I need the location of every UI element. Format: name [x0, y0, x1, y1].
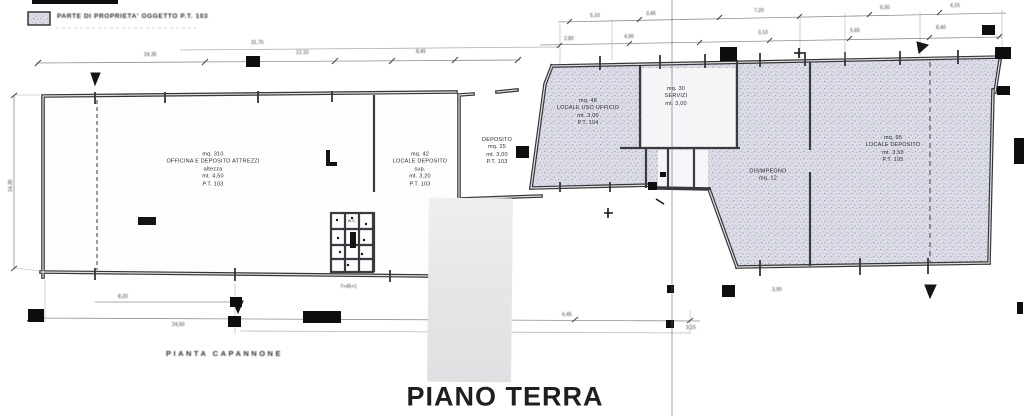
- scan-fold-line: [671, 0, 673, 416]
- dim-value: 6,30: [880, 5, 890, 11]
- dim-note-wc: 7+45+1: [340, 284, 357, 290]
- room-label-left-second: mq. 42 LOCALE DEPOSITO sup. mt. 3,20 P.T…: [393, 151, 448, 188]
- paper-patch-overlay: [427, 198, 513, 383]
- room-label-right-main: mq. 95 LOCALE DEPOSITO mt. 3,50 P.T. 105: [866, 135, 921, 165]
- room-label-corridor: DISIMPEGNO mq. 12: [749, 169, 786, 184]
- dim-value: 31,70: [251, 40, 264, 46]
- legend-swatch: [28, 12, 50, 25]
- dim-value: 3,10: [758, 30, 768, 36]
- dim-value: 8,20: [118, 294, 128, 300]
- dim-value: 8,40: [936, 25, 946, 31]
- dim-value: 7,20: [754, 8, 764, 14]
- dim-value: 12,10: [296, 50, 309, 56]
- dim-value: 5,10: [590, 13, 600, 19]
- dim-value: 14,35: [8, 179, 14, 192]
- right-top-room-floor: [642, 68, 735, 147]
- dim-value: 3,45: [646, 11, 656, 17]
- dim-value: 24,50: [172, 322, 185, 328]
- dim-value: 4,90: [624, 34, 634, 40]
- room-label-right-top: mq. 30 SERVIZI mt. 3,00: [665, 86, 688, 108]
- scanned-floorplan-page: PARTE DI PROPRIETA' OGGETTO P.T. 103 mq.…: [0, 0, 1024, 416]
- room-label-middle: DEPOSITO mq. 25 mt. 3,00 P.T. 103: [482, 137, 512, 167]
- dim-value: 4,15: [950, 3, 960, 9]
- dim-value: 2,80: [564, 36, 574, 42]
- dim-value: 3,15: [686, 325, 696, 331]
- dim-value: 8,45: [416, 49, 426, 55]
- room-label-wc: w.c.: [348, 218, 357, 224]
- drawing-subtitle: PIANTA CAPANNONE: [166, 349, 283, 358]
- drawing-title: PIANO TERRA: [406, 382, 603, 413]
- hatched-property-area: [531, 57, 1003, 267]
- dim-value: 5,65: [850, 28, 860, 34]
- dim-value: 6,45: [562, 312, 572, 318]
- room-label-left-main: mq. 310 OFFICINA E DEPOSITO ATTREZZI alt…: [166, 151, 259, 188]
- room-label-right-a: mq. 48 LOCALE USO UFFICIO mt. 3,00 P.T. …: [557, 98, 619, 128]
- legend-label: PARTE DI PROPRIETA' OGGETTO P.T. 103: [57, 13, 208, 20]
- dim-value: 24,35: [144, 52, 157, 58]
- dim-value: 3,90: [772, 287, 782, 293]
- small-subrooms-floor: [658, 150, 708, 187]
